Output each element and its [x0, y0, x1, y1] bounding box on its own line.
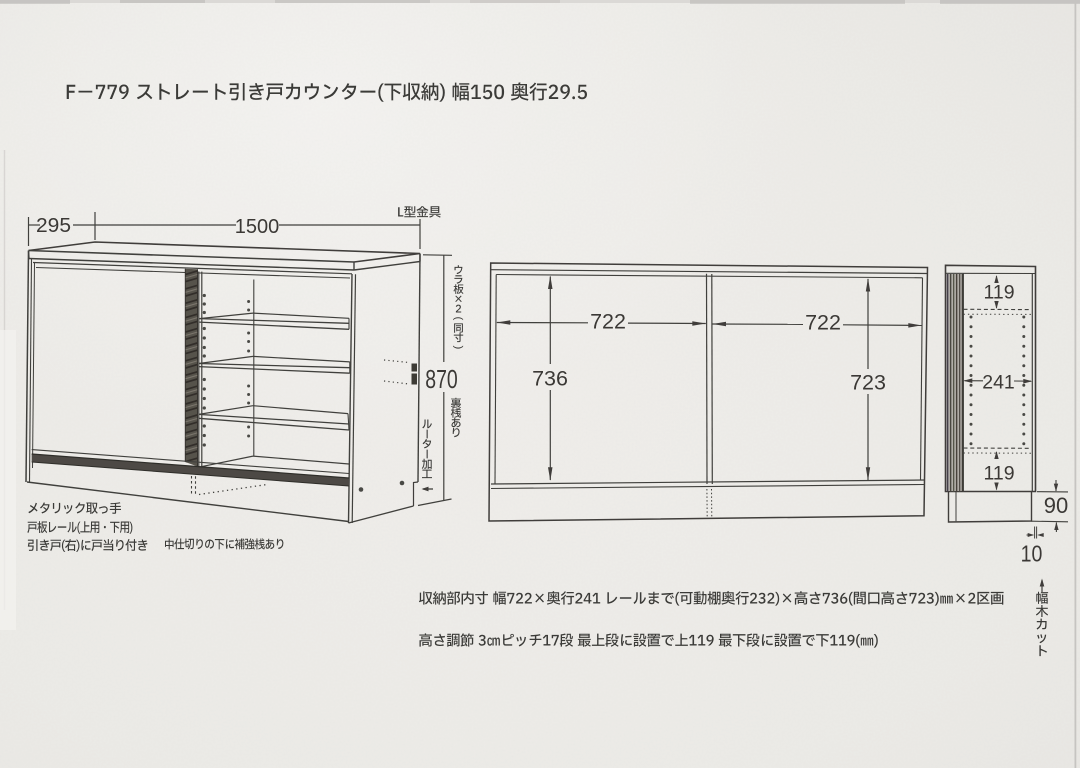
- svg-text:295: 295: [36, 214, 71, 236]
- svg-text:90: 90: [1044, 493, 1068, 518]
- svg-text:870: 870: [425, 364, 458, 393]
- svg-text:722: 722: [805, 311, 841, 335]
- svg-text:736: 736: [532, 367, 568, 391]
- svg-text:10: 10: [1021, 541, 1043, 567]
- svg-text:241: 241: [982, 372, 1015, 394]
- svg-text:723: 723: [850, 371, 886, 395]
- svg-text:119: 119: [983, 282, 1014, 304]
- svg-text:722: 722: [590, 310, 626, 334]
- svg-text:1500: 1500: [235, 216, 280, 238]
- svg-text:119: 119: [983, 463, 1014, 485]
